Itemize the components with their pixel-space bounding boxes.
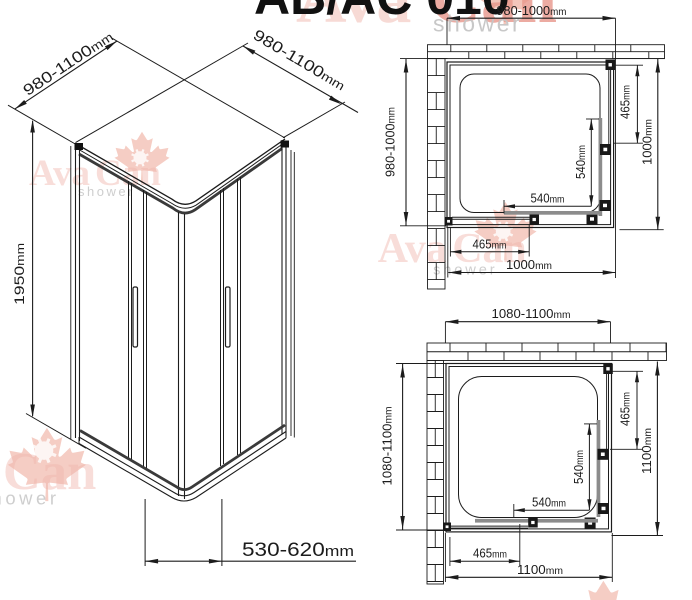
svg-text:shower: shower (78, 184, 135, 199)
svg-text:shower: shower (433, 262, 497, 278)
svg-text:540mm: 540mm (531, 192, 565, 206)
svg-text:540mm: 540mm (574, 145, 588, 179)
svg-text:465mm: 465mm (619, 392, 633, 426)
svg-text:465mm: 465mm (473, 547, 507, 561)
svg-text:540mm: 540mm (572, 450, 586, 484)
svg-text:465mm: 465mm (473, 237, 507, 251)
svg-text:540mm: 540mm (532, 496, 566, 510)
svg-text:AB/AC 010: AB/AC 010 (254, 0, 510, 25)
svg-text:530-620mm: 530-620mm (242, 540, 354, 561)
svg-text:shower: shower (0, 488, 60, 509)
svg-text:465mm: 465mm (619, 85, 633, 119)
